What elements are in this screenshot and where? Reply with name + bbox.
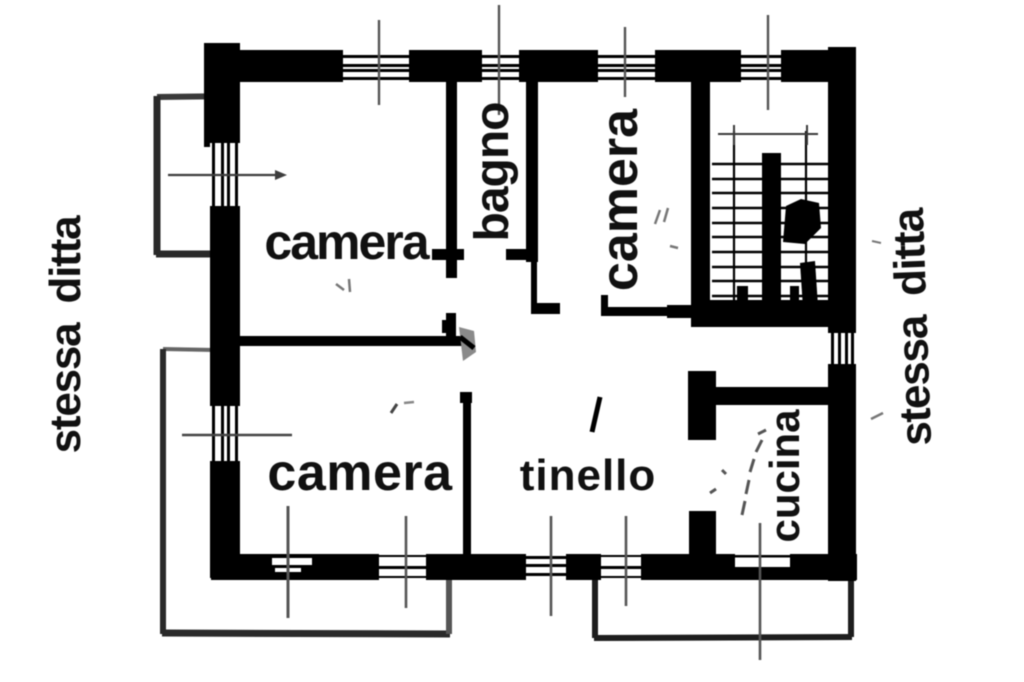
svg-text:camera: camera	[267, 444, 453, 502]
svg-text:bagno: bagno	[466, 103, 519, 242]
svg-text:camera: camera	[591, 108, 649, 291]
svg-text:stessa ditta: stessa ditta	[884, 207, 941, 447]
svg-text:cucina: cucina	[761, 409, 808, 543]
svg-text:tinello: tinello	[520, 451, 657, 500]
svg-text:camera: camera	[264, 214, 430, 270]
svg-text:stessa ditta: stessa ditta	[41, 215, 90, 453]
